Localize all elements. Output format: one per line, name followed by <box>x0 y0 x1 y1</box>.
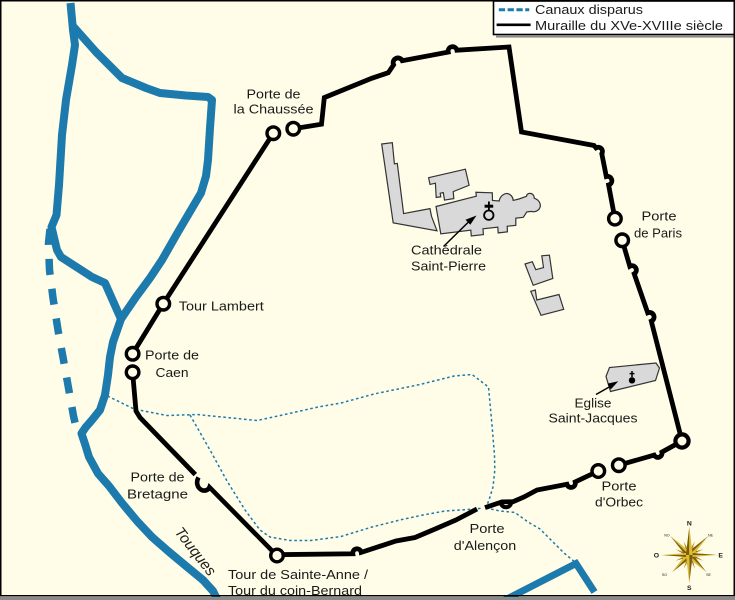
svg-text:Porte de: Porte de <box>145 348 199 363</box>
svg-text:d'Alençon: d'Alençon <box>454 538 517 553</box>
svg-text:NE: NE <box>708 534 714 538</box>
svg-text:Tour de Sainte-Anne /: Tour de Sainte-Anne / <box>228 567 368 582</box>
svg-text:Porte de: Porte de <box>131 470 185 485</box>
svg-text:SO: SO <box>662 573 667 577</box>
svg-text:S: S <box>687 585 692 592</box>
svg-text:de Paris: de Paris <box>634 226 682 241</box>
svg-text:NO: NO <box>664 534 670 538</box>
svg-text:Caen: Caen <box>156 365 189 380</box>
svg-text:Canaux disparus: Canaux disparus <box>535 2 644 17</box>
svg-text:Porte: Porte <box>642 209 677 224</box>
svg-text:Saint-Jacques: Saint-Jacques <box>549 411 639 426</box>
svg-text:Bretagne: Bretagne <box>127 487 188 502</box>
svg-text:O: O <box>654 552 659 559</box>
svg-text:Cathédrale: Cathédrale <box>411 243 482 258</box>
svg-text:Muraille du XVe-XVIIIe siècle: Muraille du XVe-XVIIIe siècle <box>535 18 723 33</box>
svg-text:Eglise: Eglise <box>575 396 612 411</box>
svg-text:Saint-Pierre: Saint-Pierre <box>411 259 486 274</box>
svg-text:SE: SE <box>706 573 711 577</box>
svg-text:d'Orbec: d'Orbec <box>595 495 644 510</box>
svg-text:Porte de: Porte de <box>247 87 301 102</box>
svg-text:la Chaussée: la Chaussée <box>234 102 314 117</box>
svg-text:Porte: Porte <box>602 479 637 494</box>
svg-text:Porte: Porte <box>470 521 505 536</box>
svg-text:Tour Lambert: Tour Lambert <box>179 299 264 314</box>
svg-text:N: N <box>687 521 692 528</box>
svg-text:E: E <box>718 552 723 559</box>
